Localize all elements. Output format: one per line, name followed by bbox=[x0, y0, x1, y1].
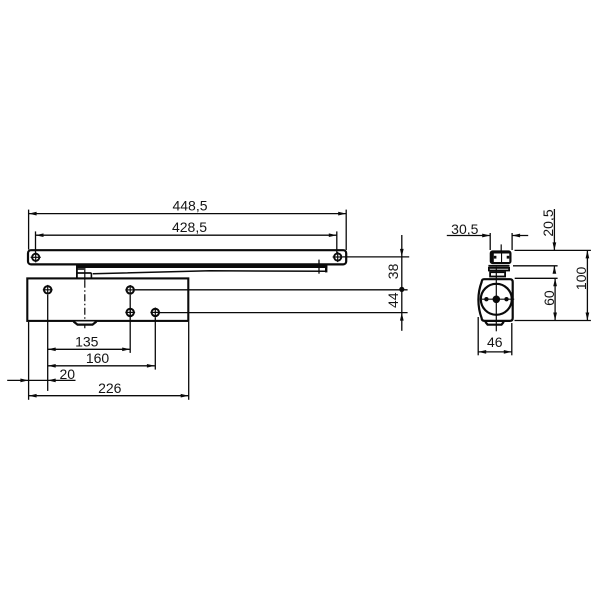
svg-text:38: 38 bbox=[385, 263, 401, 279]
svg-text:46: 46 bbox=[487, 334, 503, 350]
svg-text:30,5: 30,5 bbox=[451, 221, 478, 237]
svg-text:428,5: 428,5 bbox=[172, 219, 207, 235]
svg-text:100: 100 bbox=[573, 267, 589, 291]
svg-text:135: 135 bbox=[75, 333, 99, 349]
svg-text:20,5: 20,5 bbox=[540, 209, 556, 236]
svg-text:44: 44 bbox=[385, 292, 401, 308]
svg-text:448,5: 448,5 bbox=[172, 197, 207, 213]
svg-text:160: 160 bbox=[86, 350, 110, 366]
svg-text:20: 20 bbox=[60, 366, 76, 382]
svg-text:226: 226 bbox=[98, 380, 122, 396]
svg-text:60: 60 bbox=[541, 290, 557, 306]
